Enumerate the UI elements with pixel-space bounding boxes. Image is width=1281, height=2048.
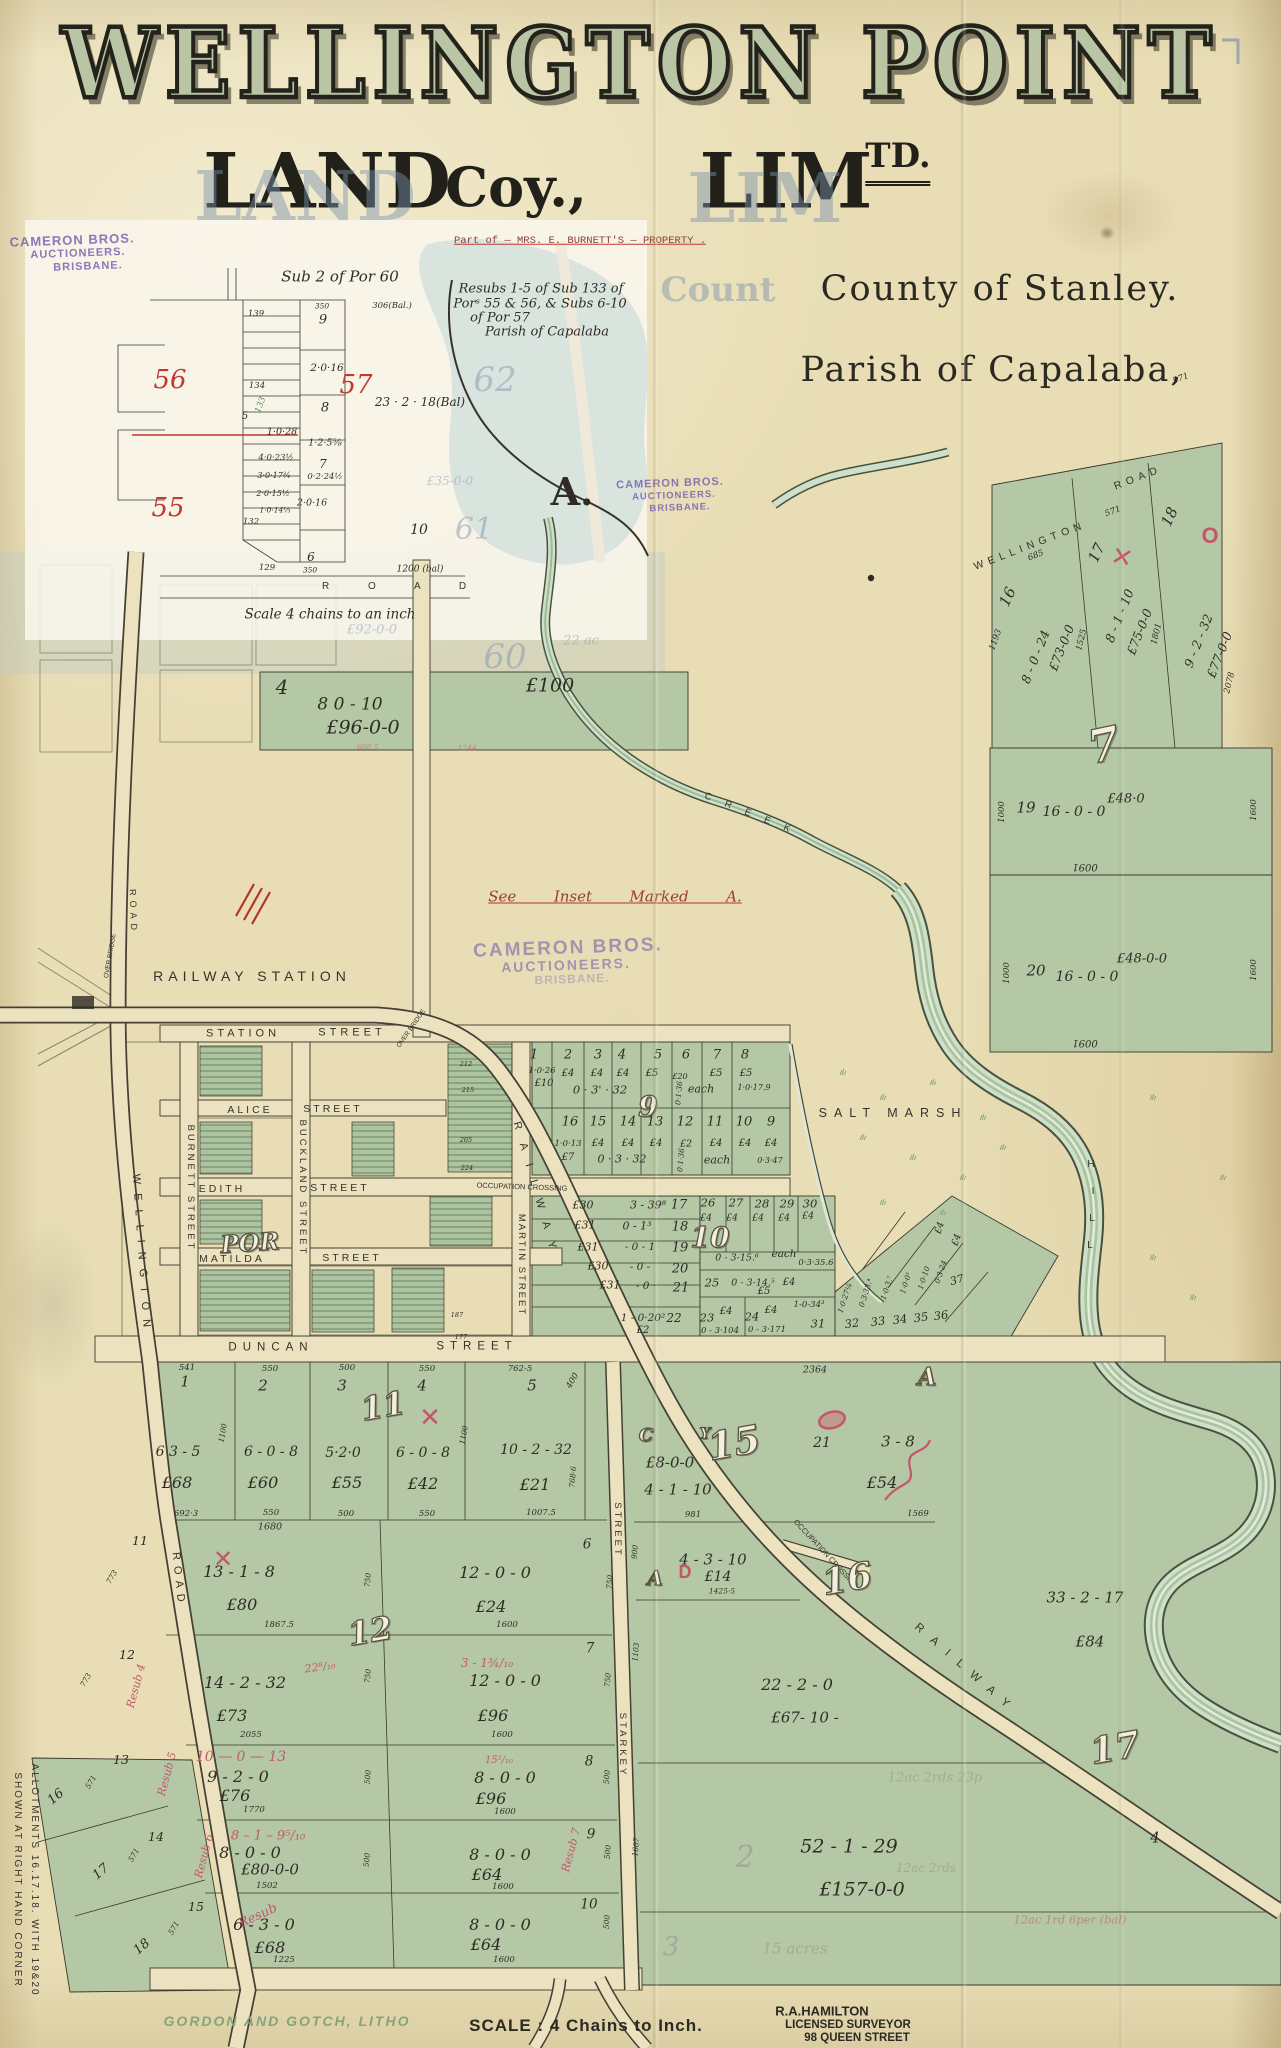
map-label: 10 - 2 - 32 [500, 1443, 572, 1457]
map-label: 1 [530, 1049, 538, 1062]
map-label: 1600 [492, 1883, 514, 1892]
map-label: 773 [79, 1672, 93, 1688]
map-label: 0·2·24½ [307, 473, 342, 482]
map-label: 541 [179, 1364, 195, 1373]
map-label: £5 [710, 1069, 723, 1079]
map-label: 18 [131, 1937, 152, 1958]
portion-number: 55 [151, 495, 184, 521]
map-label: 692·3 [174, 1510, 198, 1519]
map-label: 23 · 2 · 18(Bal) [375, 396, 465, 408]
map-label: £5 [758, 1287, 771, 1297]
map-label: 1·0·13 [554, 1140, 581, 1149]
map-label: 215 [462, 1087, 474, 1094]
map-label: 6 - 0 - 8 [244, 1445, 298, 1459]
map-label: 224 [461, 1165, 473, 1172]
map-label: 133 [254, 396, 268, 414]
street-label: BURNETT STREET [185, 1125, 195, 1252]
map-label: £80 [227, 1597, 258, 1613]
map-label: 0091 [1072, 1037, 1097, 1047]
map-label: 1000 [1003, 962, 1012, 984]
lot-price: £48-0-0 [1117, 953, 1167, 966]
street-label: STREET [318, 1028, 385, 1039]
map-label: 1100 [459, 1425, 470, 1445]
map-label: 768·6 [568, 1466, 577, 1488]
map-label: 15 [590, 1116, 607, 1129]
map-label: 5 [242, 412, 248, 422]
map-label: £4 [752, 1213, 764, 1223]
stamp-cameron-bros: AUCTIONEERS. [632, 490, 716, 502]
map-label: 773 [105, 1569, 119, 1585]
map-label: 13 [113, 1754, 129, 1767]
map-label: C [639, 1427, 653, 1445]
inset-scale: Scale 4 chains to an inch [244, 608, 415, 622]
map-label: L [1087, 1241, 1093, 1251]
map-label: 12 - 0 - 0 [469, 1673, 541, 1689]
map-label: £96 [478, 1708, 509, 1724]
map-label: 36 [933, 1309, 949, 1322]
map-label: 750 [364, 1669, 373, 1684]
map-label: £30 [588, 1261, 609, 1272]
map-label: 1·0·3.⁷ [880, 1275, 895, 1301]
map-label: 1·2·5⅝ [308, 438, 341, 448]
map-label-layer: LANDLIMCountCAMERON BROS.AUCTIONEERS.BRI… [0, 0, 1281, 2048]
lot-area: 8 - 0 - 24 [1020, 629, 1053, 686]
section-number: 12 [345, 1611, 394, 1650]
map-label: OVER BRIDGE [104, 933, 118, 979]
map-label: - 0 · [636, 1281, 656, 1292]
map-label: 1600 [1250, 799, 1259, 821]
map-label: 6 3 - 5 [156, 1445, 201, 1459]
section-number: 11 [358, 1386, 407, 1425]
map-label: £4 [592, 1139, 605, 1149]
map-label: 0·1·36 [674, 1081, 684, 1105]
street-label: STREET [303, 1104, 362, 1115]
map-label: 27 [729, 1197, 744, 1209]
map-label: 1680 [258, 1522, 282, 1532]
map-label: 4 [618, 1049, 626, 1062]
map-label: 0·3·47 [757, 1157, 782, 1165]
map-label: 550 [262, 1365, 278, 1374]
map-label: 1200 (bal) [397, 566, 444, 575]
map-label: 1225 [273, 1956, 295, 1965]
map-label: 1 - 0·20² [621, 1313, 666, 1324]
map-label: 2·0·15½ [256, 490, 289, 498]
inset-note: Parish of Capalaba [485, 326, 609, 339]
map-label: 6 - 0 - 8 [396, 1446, 450, 1460]
lot-price: £75-0-0 [1125, 607, 1155, 656]
map-label: 1·0·0¹ [899, 1271, 913, 1294]
map-label: £64 [471, 1937, 502, 1953]
creek-label: C R E E K [703, 791, 797, 836]
map-label: 33 - 2 - 17 [1047, 1591, 1124, 1606]
map-label: 2364 [803, 1365, 827, 1375]
map-label: 500 [363, 1853, 372, 1868]
map-label: £4 [765, 1306, 778, 1316]
see-inset-note: See Inset Marked A. [488, 890, 741, 905]
map-label: 306(Bal.) [372, 302, 412, 311]
map-label: 6 [682, 1049, 690, 1062]
map-label: H [1087, 1160, 1094, 1170]
map-label: 22⁸/₁₀ [304, 1659, 336, 1674]
map-label: 139 [248, 310, 264, 319]
map-label: 17 [90, 1862, 111, 1883]
map-label: 2·0·16 [297, 498, 327, 508]
map-label: 33 [870, 1315, 886, 1328]
map-label: 1569 [907, 1510, 929, 1519]
resub-note: Resub 7 [560, 1827, 582, 1873]
map-label: 10 [410, 523, 428, 537]
map-label: 0·1·36 [676, 1148, 686, 1172]
map-label: 1425·5 [709, 1587, 735, 1595]
map-label: 134 [249, 382, 265, 391]
map-label: 750 [364, 1573, 373, 1588]
map-label: 500 [338, 1510, 354, 1519]
map-label: 19 [672, 1242, 689, 1255]
map-label: £4 [778, 1213, 790, 1223]
map-label: 3 [663, 1934, 680, 1960]
map-label: 900 [631, 1545, 640, 1560]
map-label: £7 [562, 1153, 575, 1163]
lot-area: 16 - 0 - 0 [1043, 805, 1106, 819]
map-label: 500 [604, 1845, 613, 1860]
sold-mark: ✕ [419, 1404, 441, 1430]
inset-title: Sub 2 of Por 60 [281, 270, 399, 285]
map-label: 3·0·17¾ [257, 472, 290, 480]
map-label: £60 [248, 1475, 279, 1491]
map-label: 350 [315, 302, 329, 310]
map-label: £73 [217, 1708, 248, 1724]
railway-station-label: RAILWAY STATION [153, 969, 351, 983]
map-label: - 0 - 1 [625, 1242, 655, 1253]
lot-price: £100 [526, 677, 574, 696]
map-label: 14 [148, 1831, 164, 1844]
street-label: ALICE [227, 1105, 272, 1116]
property-note: Part of — MRS. E. BURNETT'S — PROPERTY . [454, 236, 706, 247]
street-label: DUNCAN [228, 1342, 313, 1354]
map-label: 26 [701, 1197, 716, 1209]
map-label: 1103 [631, 1642, 640, 1662]
map-label: 8 [321, 402, 329, 415]
map-label: 0·3·24 [934, 1259, 949, 1284]
map-label: £64 [472, 1867, 503, 1883]
lot-number: 17 [1086, 541, 1108, 565]
ghost-title: LIM [688, 165, 843, 233]
map-label: £4 [591, 1069, 604, 1079]
map-label: £96 [476, 1791, 507, 1807]
map-label: 7 [319, 458, 327, 470]
map-label: £55 [332, 1475, 363, 1491]
street-label: ROAD [1113, 464, 1164, 492]
resub-note: Resub 5 [156, 1751, 178, 1797]
map-label: 350 [303, 566, 317, 574]
map-label: 21 [813, 1436, 831, 1450]
map-label: 16 [45, 1787, 66, 1808]
map-label: 1·0·27¼ [837, 1282, 854, 1314]
map-label: 6 [583, 1538, 592, 1552]
map-label: 2055 [240, 1731, 262, 1740]
map-label: 0 - 3-15.⁶ [715, 1253, 758, 1263]
map-label: £4 [739, 1139, 752, 1149]
map-label: 1·0·14⅓ [259, 506, 290, 514]
map-label: £21 [520, 1477, 551, 1493]
map-label: OVER BRIDGE [396, 1009, 427, 1050]
map-label: 8 - 0 - 0 [474, 1770, 536, 1786]
map-label: 17 [671, 1199, 688, 1212]
map-label: 1·0·26 [528, 1067, 555, 1076]
map-label: 1·0·10 [917, 1265, 932, 1290]
map-label: £80-0-0 [241, 1863, 299, 1878]
map-label: 8 [585, 1755, 594, 1769]
map-label: 2 [258, 1379, 268, 1394]
lot-price: £73-0-0 [1047, 623, 1077, 672]
map-label: 1600 [493, 1956, 515, 1965]
map-label: 8 - 0 - 0 [469, 1917, 531, 1933]
map-label: 571 [167, 1920, 181, 1936]
section-number: 17 [1087, 1726, 1143, 1770]
map-label: 0 · 3 · 32 [598, 1154, 647, 1165]
map-label: 10 [736, 1116, 753, 1129]
map-label: £4 [951, 1233, 964, 1247]
street-label: WELLINGTON [972, 520, 1087, 573]
map-label: £157-0-0 [819, 1881, 904, 1900]
ghost-subtitle: Count [661, 273, 776, 307]
street-label: EDITH [199, 1184, 246, 1195]
margin-note: SHOWN AT RIGHT HAND CORNER [12, 1772, 22, 1987]
portion-number: 57 [339, 372, 372, 398]
map-label: 3 - 1¾/₁₀ [461, 1657, 513, 1669]
map-label: 187 [451, 1312, 463, 1319]
map-label: L [1089, 1214, 1095, 1224]
map-label: 1867.5 [264, 1621, 294, 1630]
map-label: 30 [803, 1198, 818, 1210]
map-label: 1525 [1075, 628, 1088, 651]
section-number: 15 [705, 1420, 764, 1467]
map-label: 60 [483, 640, 526, 674]
map-label: 750 [604, 1673, 613, 1688]
map-label: £4 [720, 1307, 733, 1317]
map-label: 1600 [491, 1731, 513, 1740]
map-label: £31 [600, 1280, 621, 1291]
stamp-cameron-bros: BRISBANE. [53, 260, 123, 273]
map-label: 11 [707, 1116, 724, 1129]
map-label: 500 [364, 1770, 373, 1785]
lot-price: £48·0 [1107, 793, 1144, 806]
street-label: STARKEY [617, 1713, 627, 1778]
map-label: 129 [259, 564, 275, 573]
map-label: 571 [1104, 505, 1122, 519]
map-label: 1007.5 [526, 1509, 556, 1518]
street-label: ROAD [170, 1552, 187, 1609]
map-label: £4 [562, 1069, 575, 1079]
sold-mark: O [1201, 525, 1218, 547]
map-label: £76 [220, 1788, 251, 1804]
map-label: 1·0·17.9 [737, 1084, 770, 1092]
map-label: 22 - 2 - 0 [761, 1677, 833, 1693]
street-label: STATION [206, 1029, 280, 1040]
map-label: 1607 [631, 1837, 640, 1857]
map-label: 61 [455, 515, 493, 545]
map-label: 2·0·16 [310, 363, 343, 374]
lot-number: 18 [1159, 505, 1181, 529]
map-label: 1502 [256, 1882, 278, 1891]
map-label: 9 - 2 - 0 [207, 1769, 269, 1785]
map-label: £24 [476, 1599, 507, 1615]
map-label: 2 [564, 1049, 572, 1062]
map-label: £4 [934, 1221, 947, 1235]
map-label: 1000 [998, 801, 1007, 823]
map-label: 550 [419, 1510, 435, 1519]
map-label: 22 [666, 1312, 681, 1324]
map-label: 34 [892, 1313, 908, 1326]
stamp-cameron-bros: BRISBANE. [534, 972, 609, 987]
map-label: 0091 [1072, 861, 1097, 871]
map-label: 12ac 1rd 6per (bal) [1014, 1914, 1127, 1926]
map-label: 5·2·0 [325, 1446, 361, 1460]
map-label: each [688, 1084, 714, 1095]
map-label: £4 [617, 1069, 630, 1079]
inset-note: of Por 57 [470, 312, 530, 325]
street-label: MARTIN STREET [516, 1214, 526, 1316]
map-label: 9 [767, 1116, 775, 1129]
map-label: 7 [713, 1049, 721, 1062]
map-label: 3 [337, 1379, 347, 1394]
lot-area: 8 0 - 10 [317, 697, 382, 714]
road-label: R O A D [322, 582, 484, 592]
map-label: 8 - 0 - 0 [219, 1845, 281, 1861]
map-label: 25 [705, 1277, 720, 1289]
map-label: 550 [419, 1365, 435, 1374]
section-number: 7 [1084, 719, 1125, 771]
map-label: 1770 [243, 1806, 265, 1815]
map-label: £14 [705, 1570, 732, 1584]
map-label: 1600 [496, 1621, 518, 1630]
map-label: 1100 [218, 1423, 229, 1443]
map-label: £68 [162, 1475, 193, 1491]
inset-ref-mark: A [647, 1568, 663, 1588]
map-label: 500 [339, 1364, 355, 1373]
map-label: 8 – 1 – 9⁵/₁₀ [231, 1830, 305, 1843]
map-label: 11 [132, 1535, 148, 1548]
map-label: 1 [180, 1375, 190, 1390]
map-label: 0·3·35.6 [798, 1259, 833, 1268]
map-label: 12ac 2rds [896, 1862, 956, 1874]
map-label: 8 [741, 1049, 749, 1062]
map-label: 10 [580, 1898, 597, 1912]
map-label: £4 [650, 1139, 663, 1149]
map-label: 21 [673, 1282, 690, 1295]
map-label: 132 [243, 518, 259, 527]
map-label: 0·3·33.⁴ [858, 1278, 874, 1308]
map-label: 6 [307, 551, 315, 563]
railway-label: RAILWAY [912, 1622, 1020, 1718]
map-label: £5 [646, 1069, 659, 1079]
map-label: £10 [534, 1079, 553, 1089]
map-label: 3 - 8 [881, 1435, 915, 1450]
map-label: 4·0·23½ [258, 454, 293, 463]
map-label: 12 [677, 1116, 694, 1129]
map-label: 1·0·28 [267, 427, 297, 437]
map-label: 18 [672, 1221, 689, 1234]
map-label: £2 [637, 1326, 650, 1336]
map-label: 12 - 0 - 0 [459, 1565, 531, 1581]
map-label: 4 - 1 - 10 [644, 1483, 711, 1498]
inset-note: Resubs 1-5 of Sub 133 of [459, 283, 624, 296]
street-label: WELLINGTON [130, 1174, 152, 1337]
map-label: 14 [620, 1116, 637, 1129]
map-label: 3 - 39⁸ [630, 1200, 666, 1211]
resub-note: Resub 4 [125, 1663, 147, 1709]
map-label: 8 - 0 - 0 [469, 1847, 531, 1863]
map-label: 10 — 0 — 13 [196, 1750, 286, 1764]
map-label: £4 [783, 1278, 796, 1288]
map-label: £8-0-0 [646, 1456, 694, 1471]
section-number: 16 [819, 1557, 875, 1601]
lot-number: 16 [997, 585, 1019, 609]
map-label: £4 [802, 1211, 814, 1221]
map-label: I [1092, 1187, 1095, 1197]
map-label: £4 [622, 1139, 635, 1149]
inset-note: Porˢ 55 & 56, & Subs 6-10 [453, 298, 626, 311]
map-label: £30 [573, 1200, 594, 1211]
map-label: 981 [685, 1511, 701, 1520]
portion-number: 56 [153, 367, 186, 393]
map-label: 13 [647, 1116, 664, 1129]
map-label: 4 [1150, 1831, 1160, 1846]
map-label: £4 [710, 1139, 723, 1149]
map-label: £35-0-0 [427, 475, 473, 487]
ghost-title: LAND [194, 163, 416, 231]
map-label: 22 ac [563, 635, 599, 648]
map-label: 37 [949, 1273, 965, 1287]
map-label: 750 [606, 1575, 615, 1590]
map-label: 0 - 3·171 [748, 1326, 786, 1335]
map-label: 2 [735, 1843, 754, 1873]
map-label: 3 [594, 1049, 602, 1062]
map-label: 14 - 2 - 32 [204, 1675, 286, 1691]
map-label: each [771, 1249, 796, 1260]
map-label: 31 [811, 1318, 826, 1330]
map-label: 52 - 1 - 29 [800, 1838, 897, 1857]
map-label: 32 [844, 1317, 860, 1330]
map-label: 0 - 1³ [622, 1221, 651, 1232]
map-label: 571 [84, 1774, 98, 1790]
map-label: 23 [700, 1312, 715, 1324]
map-label: £67- 10 - [771, 1711, 838, 1726]
street-label: STREET [436, 1341, 517, 1353]
map-label: 1-0-34³ [794, 1301, 825, 1310]
map-label: each [704, 1155, 730, 1166]
map-label: 550 [263, 1509, 279, 1518]
stamp-cameron-bros: BRISBANE. [649, 502, 711, 514]
map-label: 9 [319, 314, 327, 327]
map-label: £68 [255, 1940, 286, 1956]
map-label: 212 [460, 1061, 472, 1068]
map-label: 205 [460, 1137, 472, 1144]
lot-area: 16 - 0 - 0 [1056, 970, 1119, 984]
map-label: 500 [603, 1770, 612, 1785]
street-label: BUCKLAND STREET [297, 1120, 307, 1257]
map-label: 1193 [988, 628, 1003, 651]
map-label: £42 [408, 1476, 439, 1492]
map-label: - 0 - [630, 1262, 650, 1273]
lot-number: 20 [1026, 964, 1045, 979]
sold-mark: ✕ [1109, 542, 1136, 572]
map-label: 9 [587, 1828, 596, 1842]
salt-marsh-label: SALT MARSH [819, 1107, 968, 1120]
map-label: 666·5 [357, 743, 378, 751]
map-label: 0 - 3·104 [701, 1327, 739, 1336]
lot-price: £96-0-0 [326, 719, 399, 738]
